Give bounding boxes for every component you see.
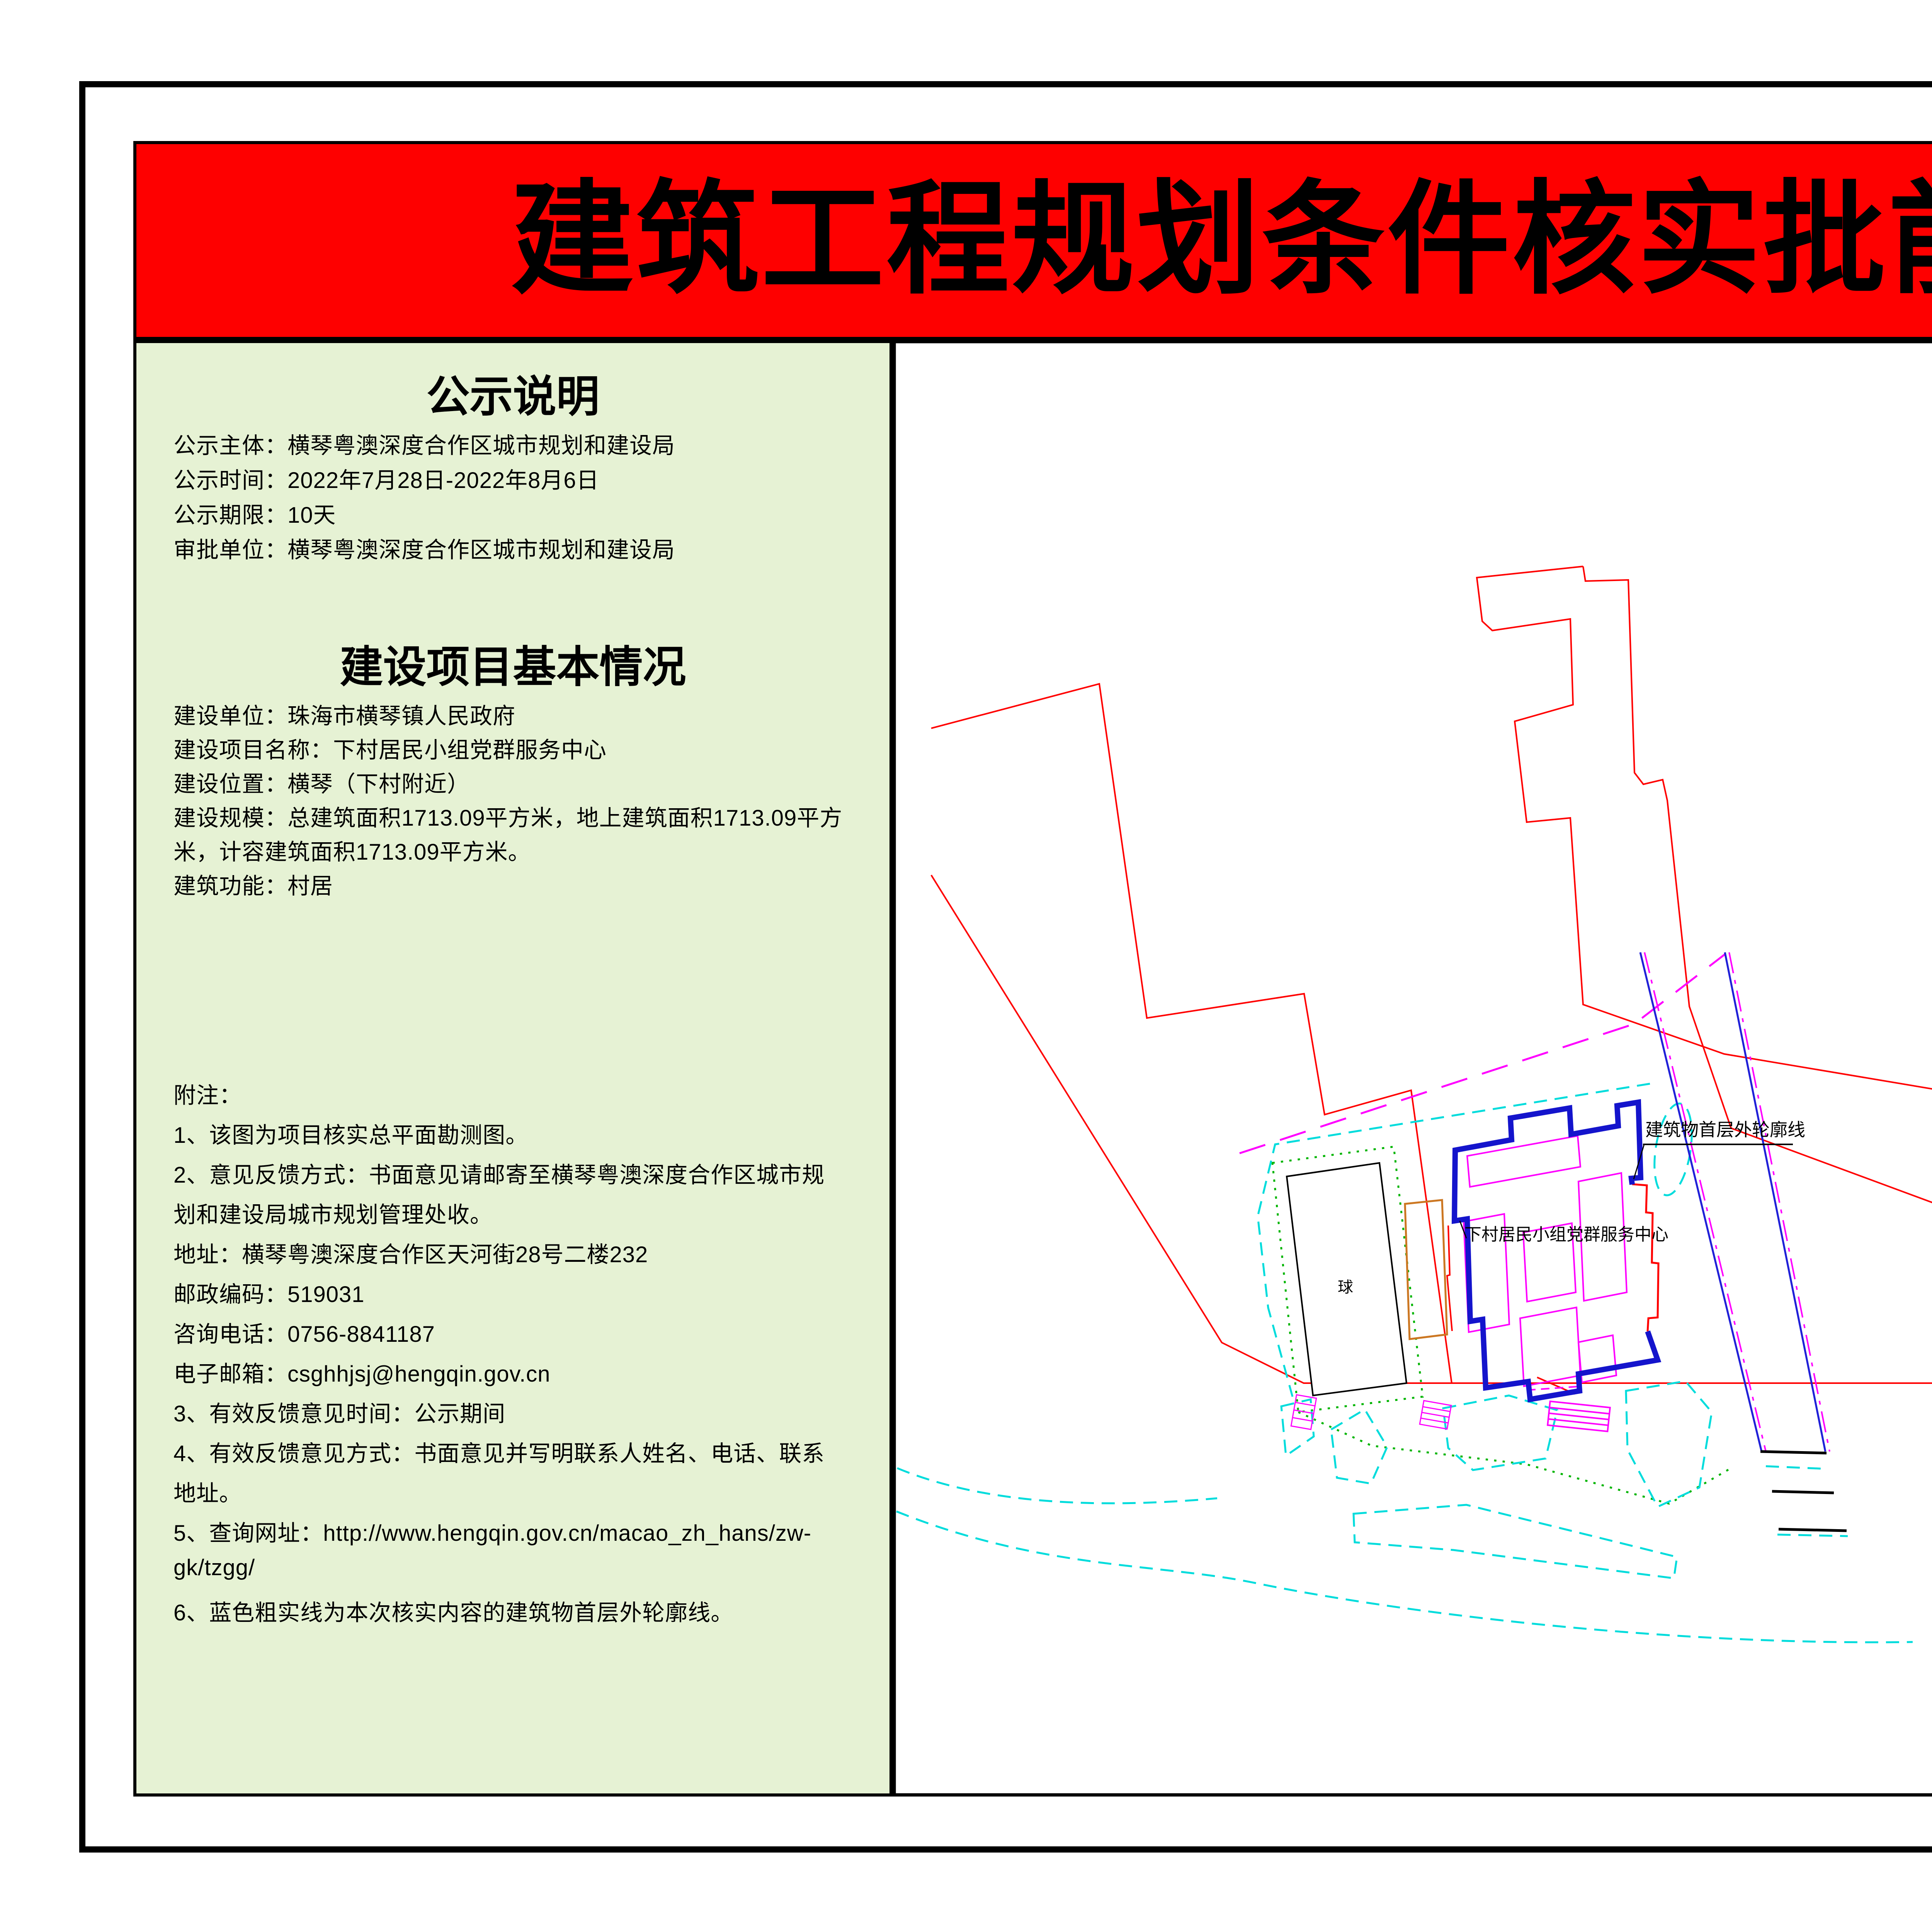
- text-line: 1、该图为项目核实总平面勘测图。: [173, 1117, 528, 1149]
- text-line: 地址：横琴粤澳深度合作区天河街28号二楼232: [173, 1236, 648, 1269]
- title-banner: 建筑工程规划条件核实批前公示: [133, 141, 1932, 340]
- text-line: 电子邮箱：csghhjsj@hengqin.gov.cn: [173, 1356, 551, 1388]
- text-line: 4、有效反馈意见方式：书面意见并写明联系人姓名、电话、联系: [173, 1435, 825, 1468]
- text-line: 5、查询网址：http://www.hengqin.gov.cn/macao_z…: [173, 1515, 811, 1547]
- court-label: 球: [1338, 1279, 1353, 1296]
- text-line: 地址。: [173, 1475, 242, 1508]
- poster-title: 建筑工程规划条件核实批前公示: [136, 144, 1932, 335]
- text-line: 3、有效反馈意见时间：公示期间: [173, 1395, 505, 1428]
- text-line: 划和建设局城市规划管理处收。: [173, 1197, 493, 1229]
- site-plan-map: 球 下村居民小组党群服务中心 建筑物首层外轮廓线: [893, 340, 1932, 1797]
- info-panel: 公示说明 公示主体：横琴粤澳深度合作区城市规划和建设局公示时间：2022年7月2…: [133, 340, 893, 1797]
- text-line: 6、蓝色粗实线为本次核实内容的建筑物首层外轮廓线。: [173, 1594, 733, 1627]
- notes-lines: 附注：1、该图为项目核实总平面勘测图。2、意见反馈方式：书面意见请邮寄至横琴粤澳…: [136, 343, 889, 1793]
- svg-text:下村居民小组党群服务中心: 下村居民小组党群服务中心: [1464, 1225, 1668, 1244]
- text-line: 附注：: [173, 1077, 242, 1110]
- notice-poster-page: 建筑工程规划条件核实批前公示 公示说明 公示主体：横琴粤澳深度合作区城市规划和建…: [0, 0, 1932, 1919]
- map-border: [894, 342, 1932, 1795]
- text-line: gk/tzgg/: [173, 1555, 255, 1581]
- svg-text:建筑物首层外轮廓线: 建筑物首层外轮廓线: [1645, 1120, 1805, 1140]
- text-line: 咨询电话：0756-8841187: [173, 1316, 435, 1348]
- text-line: 2、意见反馈方式：书面意见请邮寄至横琴粤澳深度合作区城市规: [173, 1157, 825, 1189]
- text-line: 邮政编码：519031: [173, 1276, 365, 1309]
